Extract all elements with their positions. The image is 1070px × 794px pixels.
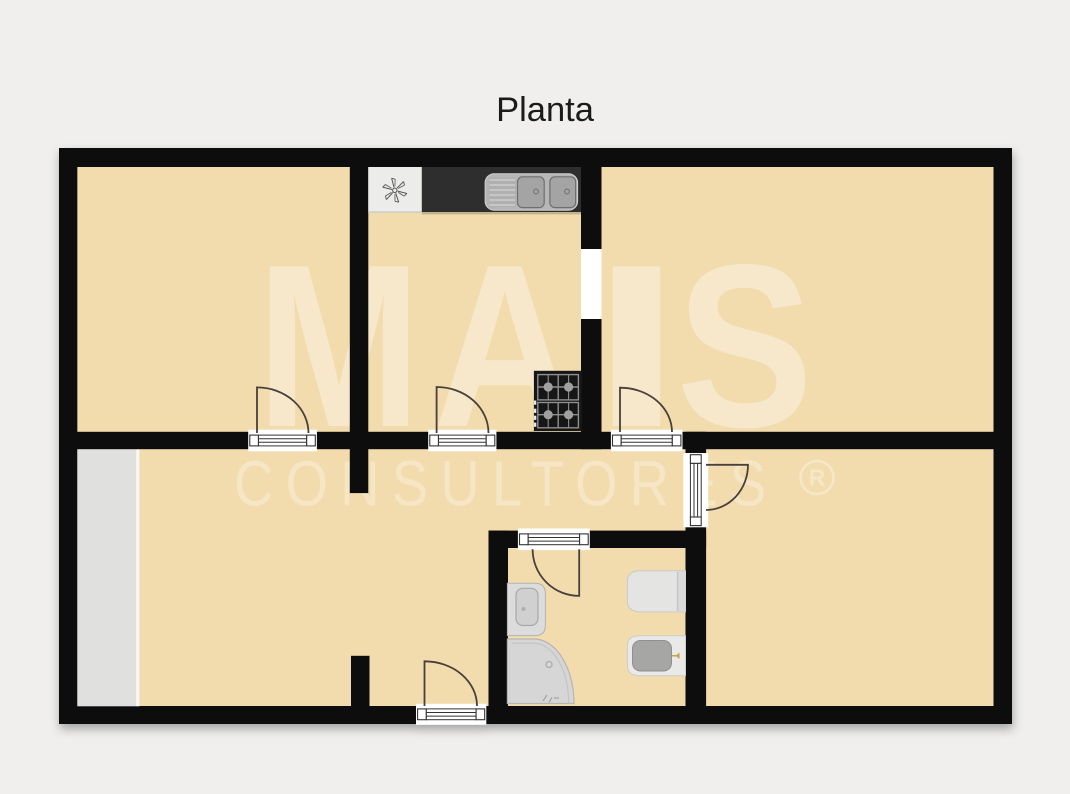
svg-text:Planta: Planta xyxy=(496,91,595,129)
svg-text:R: R xyxy=(809,465,826,491)
